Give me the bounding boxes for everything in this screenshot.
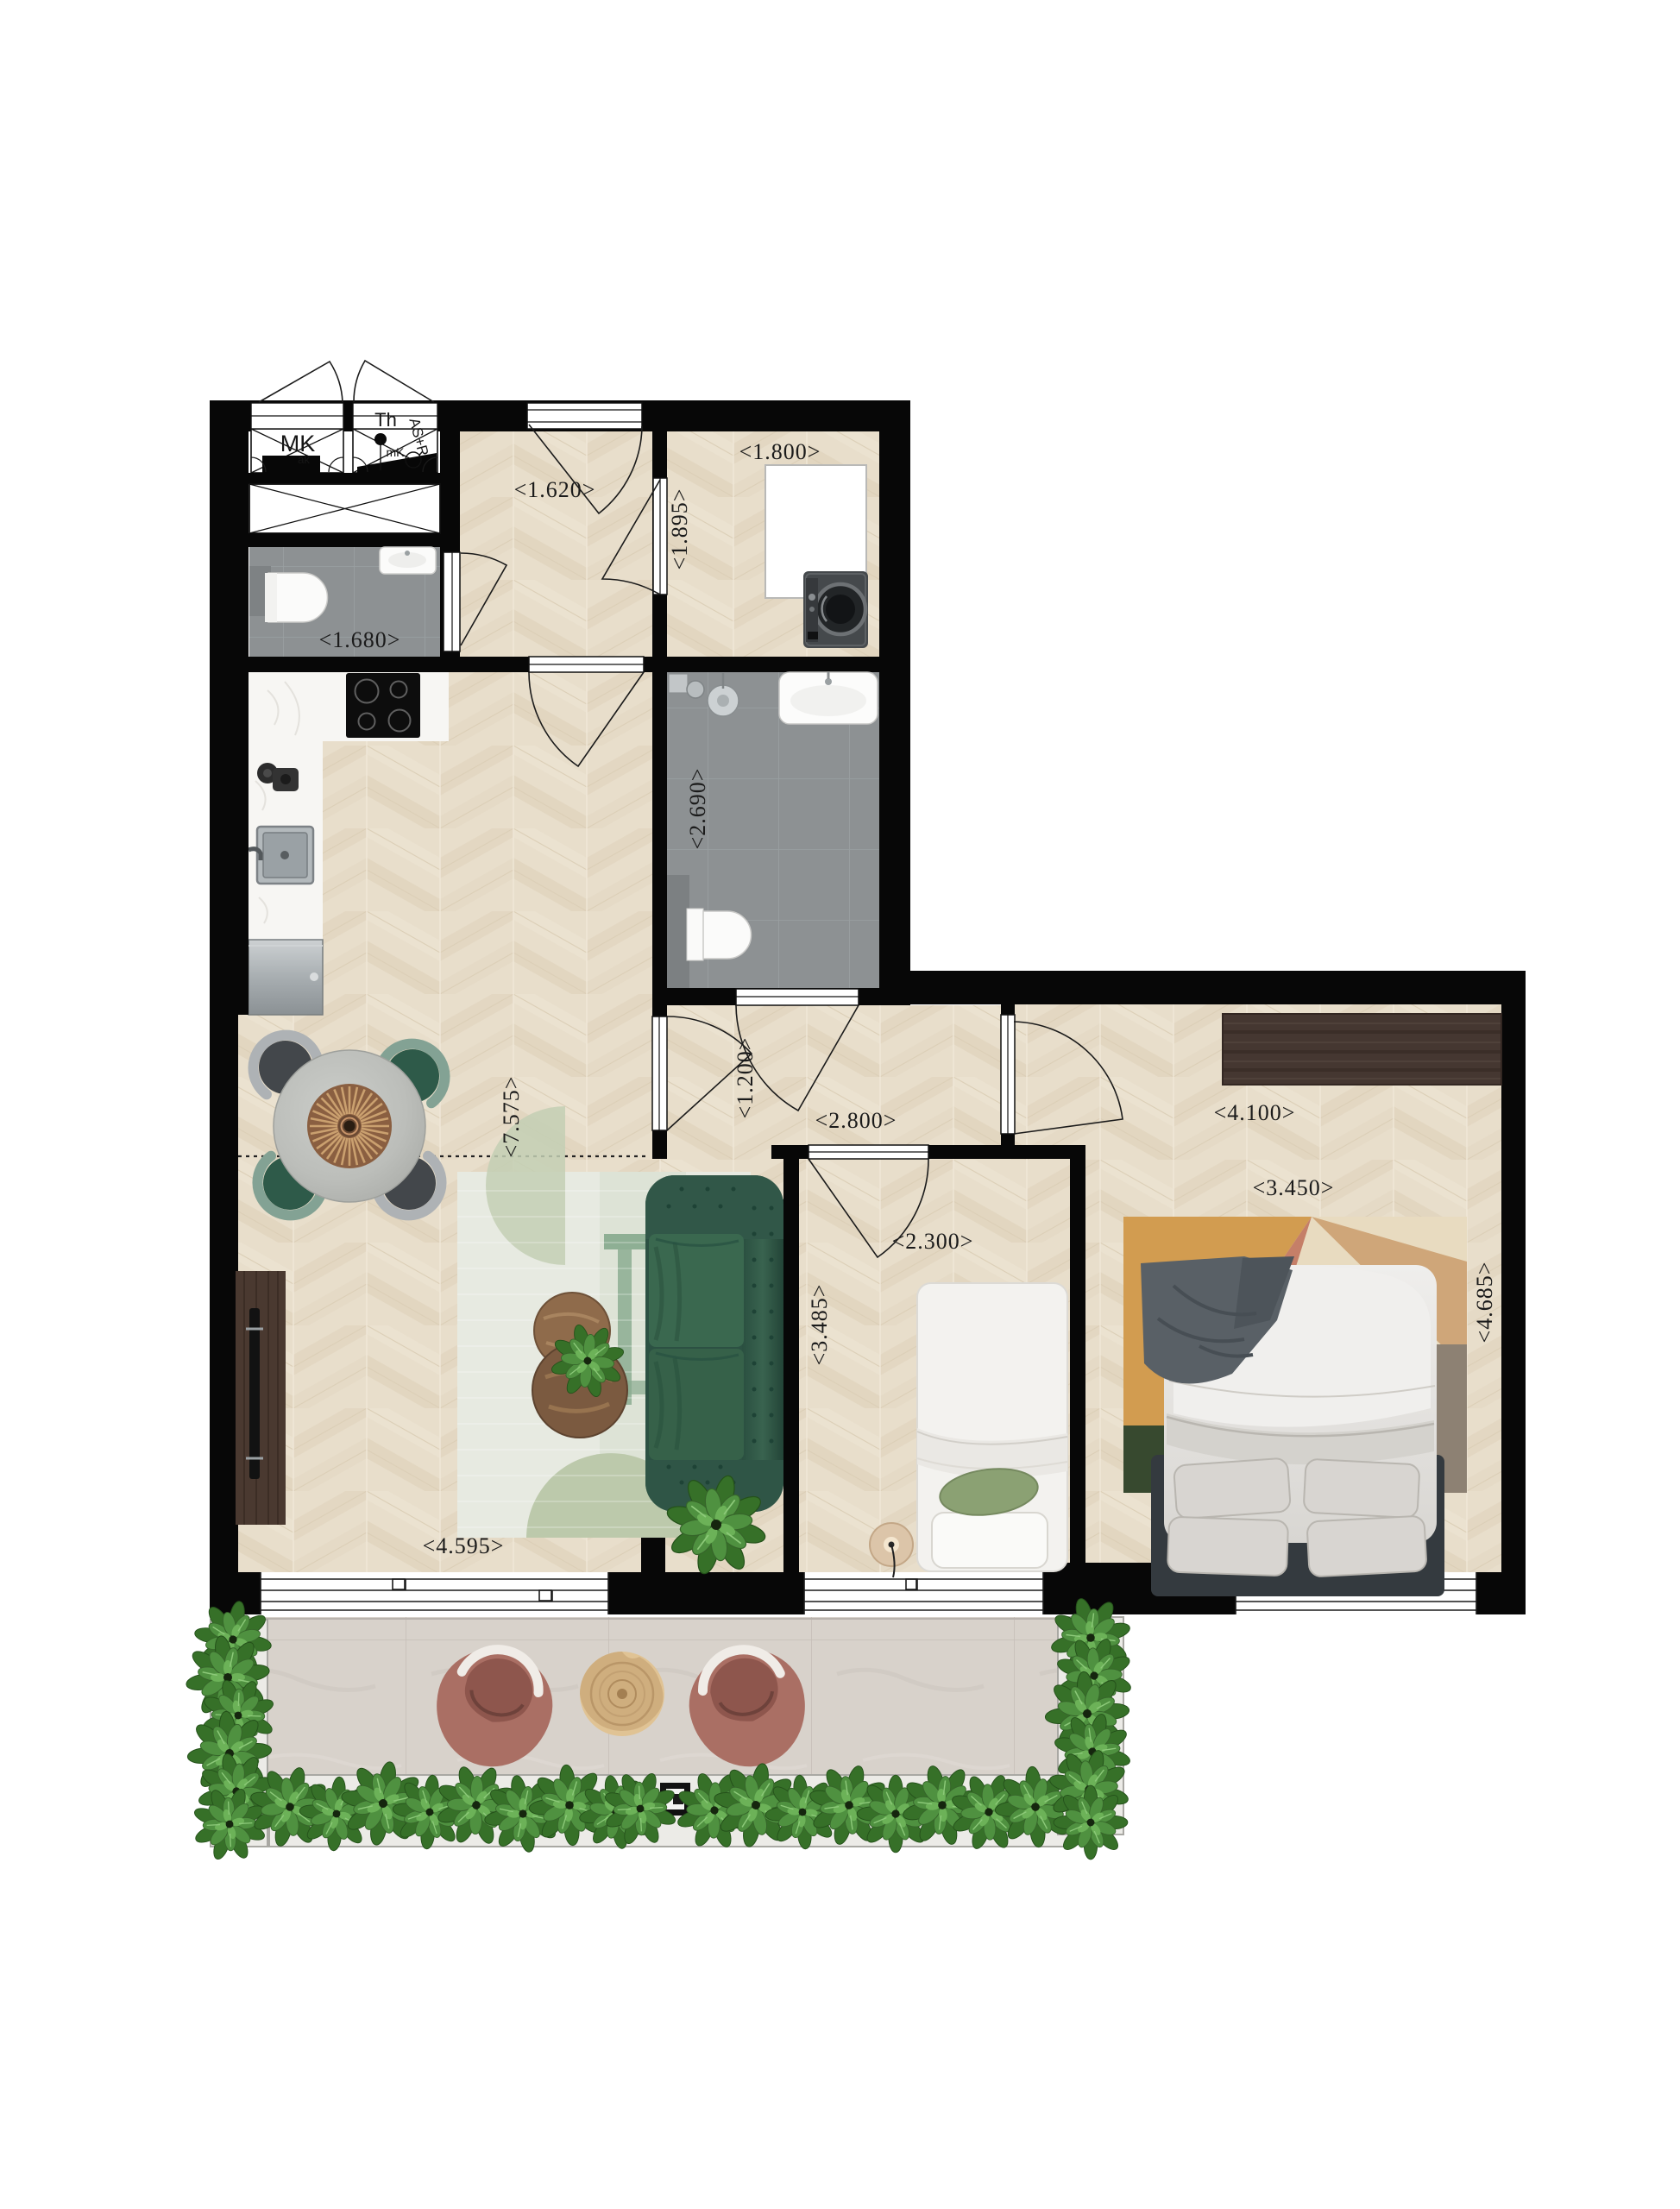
svg-text:<4.685>: <4.685> — [1472, 1262, 1497, 1344]
svg-text:<3.485>: <3.485> — [807, 1284, 832, 1366]
svg-text:mK: mK — [387, 445, 406, 459]
svg-text:<1.200>: <1.200> — [733, 1037, 758, 1119]
svg-text:<2.800>: <2.800> — [815, 1108, 897, 1133]
svg-text:<2.690>: <2.690> — [685, 768, 710, 850]
svg-text:<2.300>: <2.300> — [892, 1229, 974, 1254]
svg-text:<1.895>: <1.895> — [667, 488, 692, 570]
svg-text:<7.575>: <7.575> — [499, 1076, 524, 1158]
svg-text:<1.680>: <1.680> — [319, 627, 401, 652]
svg-text:<1.620>: <1.620> — [514, 477, 596, 502]
svg-text:<1.800>: <1.800> — [739, 439, 821, 464]
svg-text:Th: Th — [374, 409, 397, 431]
svg-text:<4.100>: <4.100> — [1214, 1100, 1296, 1125]
svg-text:ak: ak — [298, 453, 310, 466]
svg-text:<3.450>: <3.450> — [1253, 1175, 1335, 1200]
svg-text:<4.595>: <4.595> — [423, 1533, 505, 1558]
